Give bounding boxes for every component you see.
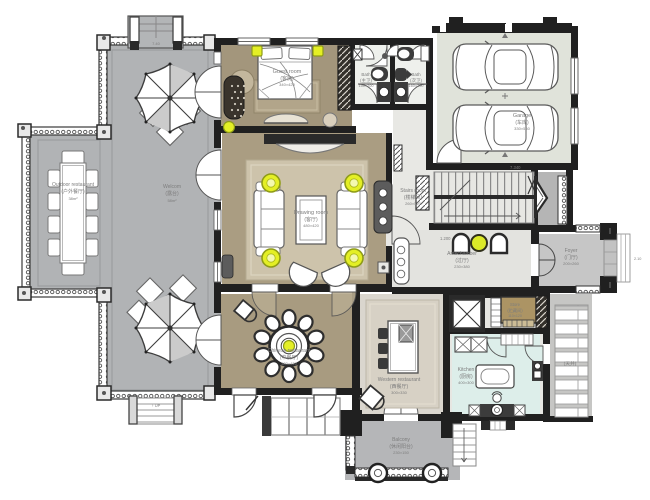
- svg-text:150×200: 150×200: [359, 84, 374, 88]
- svg-text:Outdoor restaurant: Outdoor restaurant: [52, 182, 95, 188]
- svg-text:Western restaurant: Western restaurant: [378, 377, 421, 383]
- svg-text:(车库): (车库): [515, 119, 529, 126]
- svg-text:Guest room: Guest room: [273, 69, 302, 75]
- svg-text:(次卫): (次卫): [410, 77, 422, 84]
- svg-text:2.10: 2.10: [634, 257, 641, 261]
- svg-text:(厨房): (厨房): [459, 373, 473, 380]
- svg-text:110×120: 110×120: [508, 314, 522, 318]
- svg-text:Kitchen: Kitchen: [458, 367, 475, 373]
- svg-text:200×260: 200×260: [563, 261, 579, 266]
- svg-text:260×520: 260×520: [405, 201, 421, 206]
- svg-text:7.340: 7.340: [510, 165, 521, 170]
- svg-text:380×420: 380×420: [281, 361, 297, 366]
- svg-text:160×200: 160×200: [409, 84, 424, 88]
- svg-text:(楼梯间): (楼梯间): [404, 194, 423, 201]
- svg-text:Garage: Garage: [513, 113, 531, 119]
- svg-text:Stairs room: Stairs room: [400, 188, 426, 194]
- svg-text:300×330: 300×330: [391, 390, 407, 395]
- svg-text:Store: Store: [510, 302, 521, 307]
- svg-text:38m²: 38m²: [68, 196, 78, 201]
- svg-text:Antechamber: Antechamber: [447, 251, 477, 257]
- svg-text:(西餐厅): (西餐厅): [390, 383, 409, 390]
- svg-text:480×420: 480×420: [303, 223, 319, 228]
- svg-text:(天井): (天井): [564, 360, 577, 367]
- svg-text:1.200: 1.200: [440, 236, 451, 241]
- svg-text:Drawing room: Drawing room: [294, 210, 329, 216]
- svg-text:(客房): (客房): [280, 75, 294, 82]
- svg-text:7.40: 7.40: [152, 41, 161, 46]
- svg-text:(露台): (露台): [165, 190, 179, 197]
- svg-text:230×150: 230×150: [393, 450, 409, 455]
- svg-text:Bath: Bath: [361, 72, 371, 77]
- svg-text:↑ UP: ↑ UP: [152, 403, 161, 408]
- svg-text:340×420: 340×420: [279, 82, 295, 87]
- svg-text:Foyer: Foyer: [565, 248, 578, 254]
- svg-text:400×300: 400×300: [458, 380, 474, 385]
- svg-text:(过厅): (过厅): [455, 257, 469, 264]
- svg-text:(客厅): (客厅): [304, 216, 318, 223]
- svg-text:Chinese restaurant: Chinese restaurant: [268, 348, 311, 354]
- svg-text:(户外餐厅): (户外餐厅): [61, 188, 85, 195]
- svg-text:330×560: 330×560: [514, 126, 530, 131]
- svg-text:(贮藏间): (贮藏间): [507, 307, 523, 314]
- svg-text:(主卫): (主卫): [360, 77, 372, 83]
- svg-text:230×380: 230×380: [454, 264, 470, 269]
- svg-text:(门厅): (门厅): [564, 254, 578, 261]
- svg-text:(中餐厅): (中餐厅): [280, 354, 299, 361]
- svg-text:(休闲阳台): (休闲阳台): [389, 443, 413, 450]
- svg-text:Balcony: Balcony: [392, 437, 410, 443]
- svg-text:Bath: Bath: [411, 72, 421, 77]
- svg-text:58m²: 58m²: [167, 198, 177, 203]
- svg-text:Welcom: Welcom: [163, 184, 181, 190]
